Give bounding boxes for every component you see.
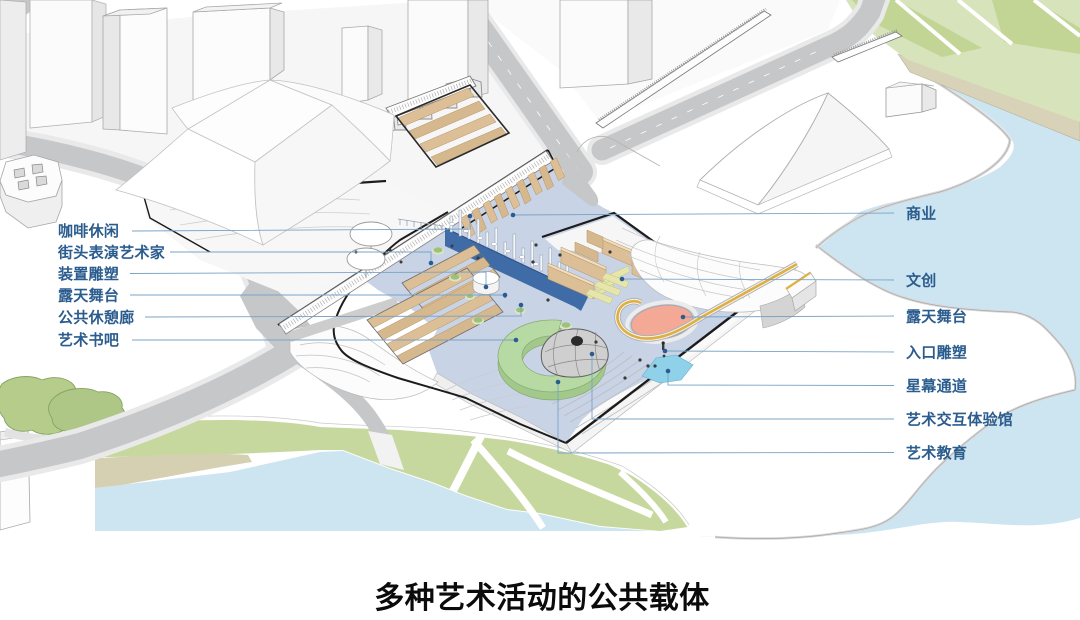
svg-text:艺术交互体验馆: 艺术交互体验馆 xyxy=(906,411,1013,429)
svg-text:商业: 商业 xyxy=(906,205,937,223)
svg-text:艺术教育: 艺术教育 xyxy=(906,444,967,462)
svg-text:露天舞台: 露天舞台 xyxy=(58,287,119,305)
svg-text:装置雕塑: 装置雕塑 xyxy=(57,265,119,283)
svg-text:咖啡休闲: 咖啡休闲 xyxy=(58,222,119,240)
svg-text:街头表演艺术家: 街头表演艺术家 xyxy=(57,244,165,262)
svg-text:公共休憩廊: 公共休憩廊 xyxy=(58,309,135,327)
svg-text:露天舞台: 露天舞台 xyxy=(906,308,967,326)
svg-text:入口雕塑: 入口雕塑 xyxy=(906,344,967,362)
svg-text:文创: 文创 xyxy=(906,272,937,290)
svg-text:星幕通道: 星幕通道 xyxy=(906,377,967,395)
svg-text:艺术书吧: 艺术书吧 xyxy=(58,331,119,349)
